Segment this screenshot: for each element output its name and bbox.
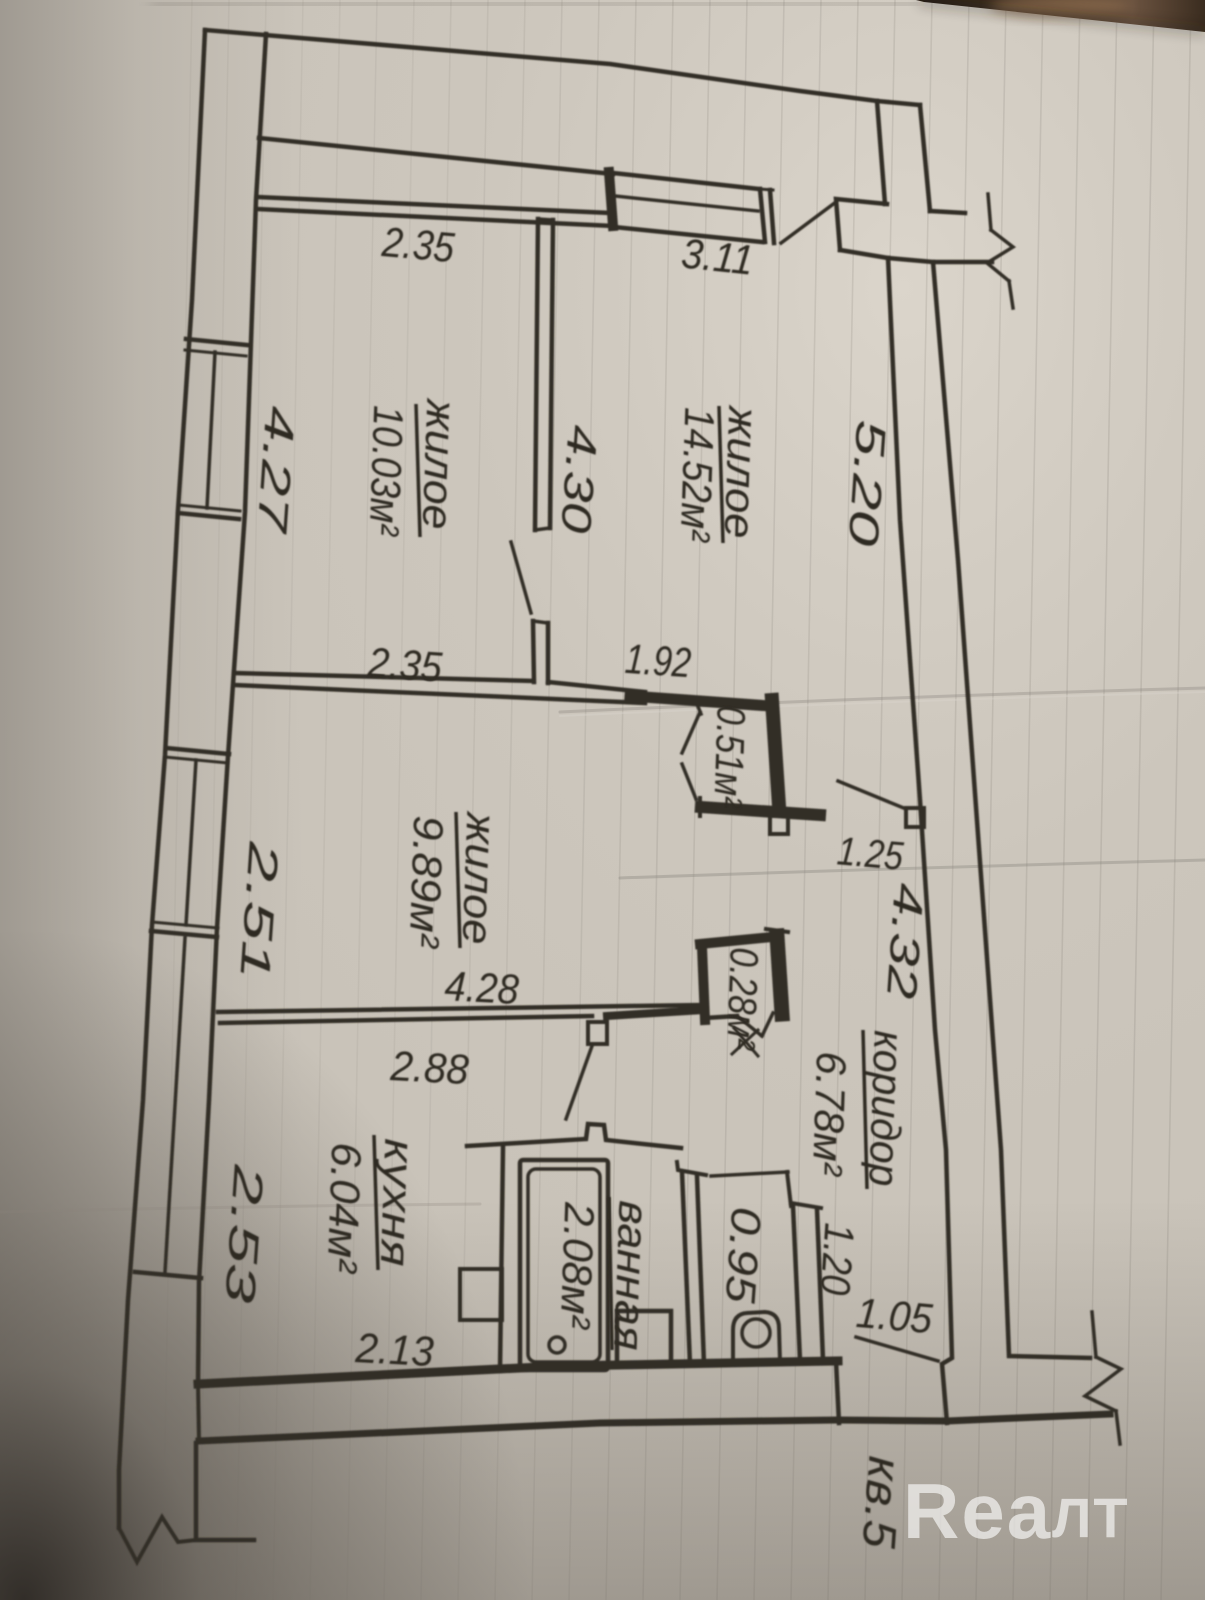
svg-text:1.20: 1.20 xyxy=(811,1221,863,1297)
svg-text:4.27: 4.27 xyxy=(248,405,304,536)
svg-text:5.20: 5.20 xyxy=(840,419,896,549)
svg-text:2.51: 2.51 xyxy=(231,839,288,982)
svg-text:2.13: 2.13 xyxy=(354,1324,435,1375)
svg-text:6.78м²: 6.78м² xyxy=(804,1051,855,1179)
svg-text:14.52м²: 14.52м² xyxy=(672,407,724,544)
svg-text:2.53: 2.53 xyxy=(216,1162,273,1305)
svg-text:10.03м²: 10.03м² xyxy=(361,405,413,538)
svg-text:4.32: 4.32 xyxy=(878,882,933,1001)
svg-text:2.08м²: 2.08м² xyxy=(552,1201,603,1332)
svg-text:6.04м²: 6.04м² xyxy=(319,1142,371,1276)
svg-text:3.11: 3.11 xyxy=(679,229,756,283)
svg-text:1.05: 1.05 xyxy=(854,1289,934,1342)
svg-text:жилое: жилое xyxy=(414,397,466,531)
svg-text:0.51м²: 0.51м² xyxy=(705,705,753,810)
svg-text:0.28м²: 0.28м² xyxy=(718,947,766,1052)
svg-text:2.88: 2.88 xyxy=(389,1042,471,1093)
svg-text:4.28: 4.28 xyxy=(444,962,521,1013)
svg-text:0.95: 0.95 xyxy=(717,1205,771,1305)
svg-text:коридор: коридор xyxy=(860,1030,912,1188)
svg-text:кухня: кухня xyxy=(372,1138,423,1268)
svg-text:жилое: жилое xyxy=(454,810,506,946)
svg-text:2.35: 2.35 xyxy=(366,638,445,690)
svg-text:9.89м²: 9.89м² xyxy=(401,815,453,951)
svg-text:2.35: 2.35 xyxy=(379,218,456,271)
svg-text:1.25: 1.25 xyxy=(835,829,905,879)
svg-text:4.30: 4.30 xyxy=(552,424,606,536)
svg-text:1.92: 1.92 xyxy=(623,635,692,686)
